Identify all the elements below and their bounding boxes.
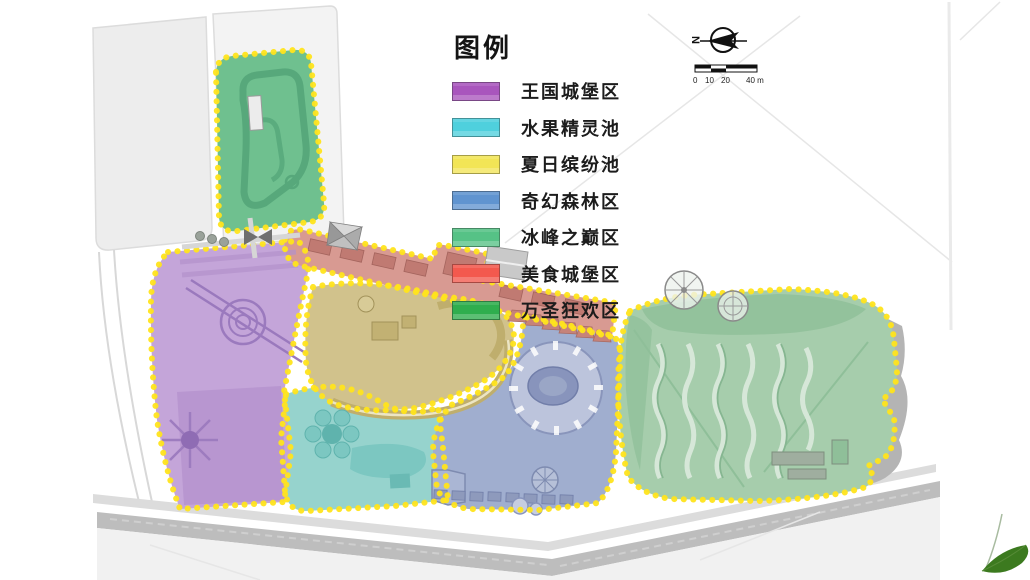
north-label: N xyxy=(689,36,701,44)
ferris-wheel-large xyxy=(665,271,703,309)
legend-title: 图例 xyxy=(454,28,621,65)
leaf-decoration xyxy=(982,514,1028,573)
legend-item-ice-peak: 冰峰之巅区 xyxy=(452,224,621,250)
legend-item-kingdom-castle: 王国城堡区 xyxy=(452,78,621,104)
scale-tick-10: 10 xyxy=(705,76,714,85)
scale-tick-20: 20 xyxy=(721,76,730,85)
scale-bar: 0 10 20 40 m xyxy=(693,65,764,85)
legend: 图例 王国城堡区 水果精灵池 夏日缤纷池 奇幻森林区 冰峰之巅区 美食城堡区 万… xyxy=(452,28,621,334)
legend-item-food-castle: 美食城堡区 xyxy=(452,261,621,287)
forest-carousel xyxy=(509,341,603,435)
legend-item-fruit-fairy-pool: 水果精灵池 xyxy=(452,115,621,141)
legend-swatch-kingdom-castle xyxy=(452,82,500,101)
scale-tick-0: 0 xyxy=(693,76,698,85)
legend-swatch-summer-splash-pool xyxy=(452,155,500,174)
legend-swatch-ice-peak xyxy=(452,228,500,247)
legend-item-halloween-carnival: 万圣狂欢区 xyxy=(452,297,621,323)
scale-tick-40: 40 m xyxy=(746,76,764,85)
glass-pyramid xyxy=(327,222,362,250)
legend-swatch-halloween-carnival xyxy=(452,301,500,320)
site-plan-canvas: N 0 10 20 40 m 图例 王国城堡区 水果精灵池 夏日缤纷池 奇幻森林… xyxy=(0,0,1030,580)
ferris-wheel-small xyxy=(718,291,748,321)
legend-swatch-fantasy-forest xyxy=(452,191,500,210)
legend-swatch-food-castle xyxy=(452,264,500,283)
north-arrow: N xyxy=(689,28,747,52)
legend-item-fantasy-forest: 奇幻森林区 xyxy=(452,188,621,214)
legend-swatch-fruit-fairy-pool xyxy=(452,118,500,137)
legend-item-summer-splash-pool: 夏日缤纷池 xyxy=(452,151,621,177)
